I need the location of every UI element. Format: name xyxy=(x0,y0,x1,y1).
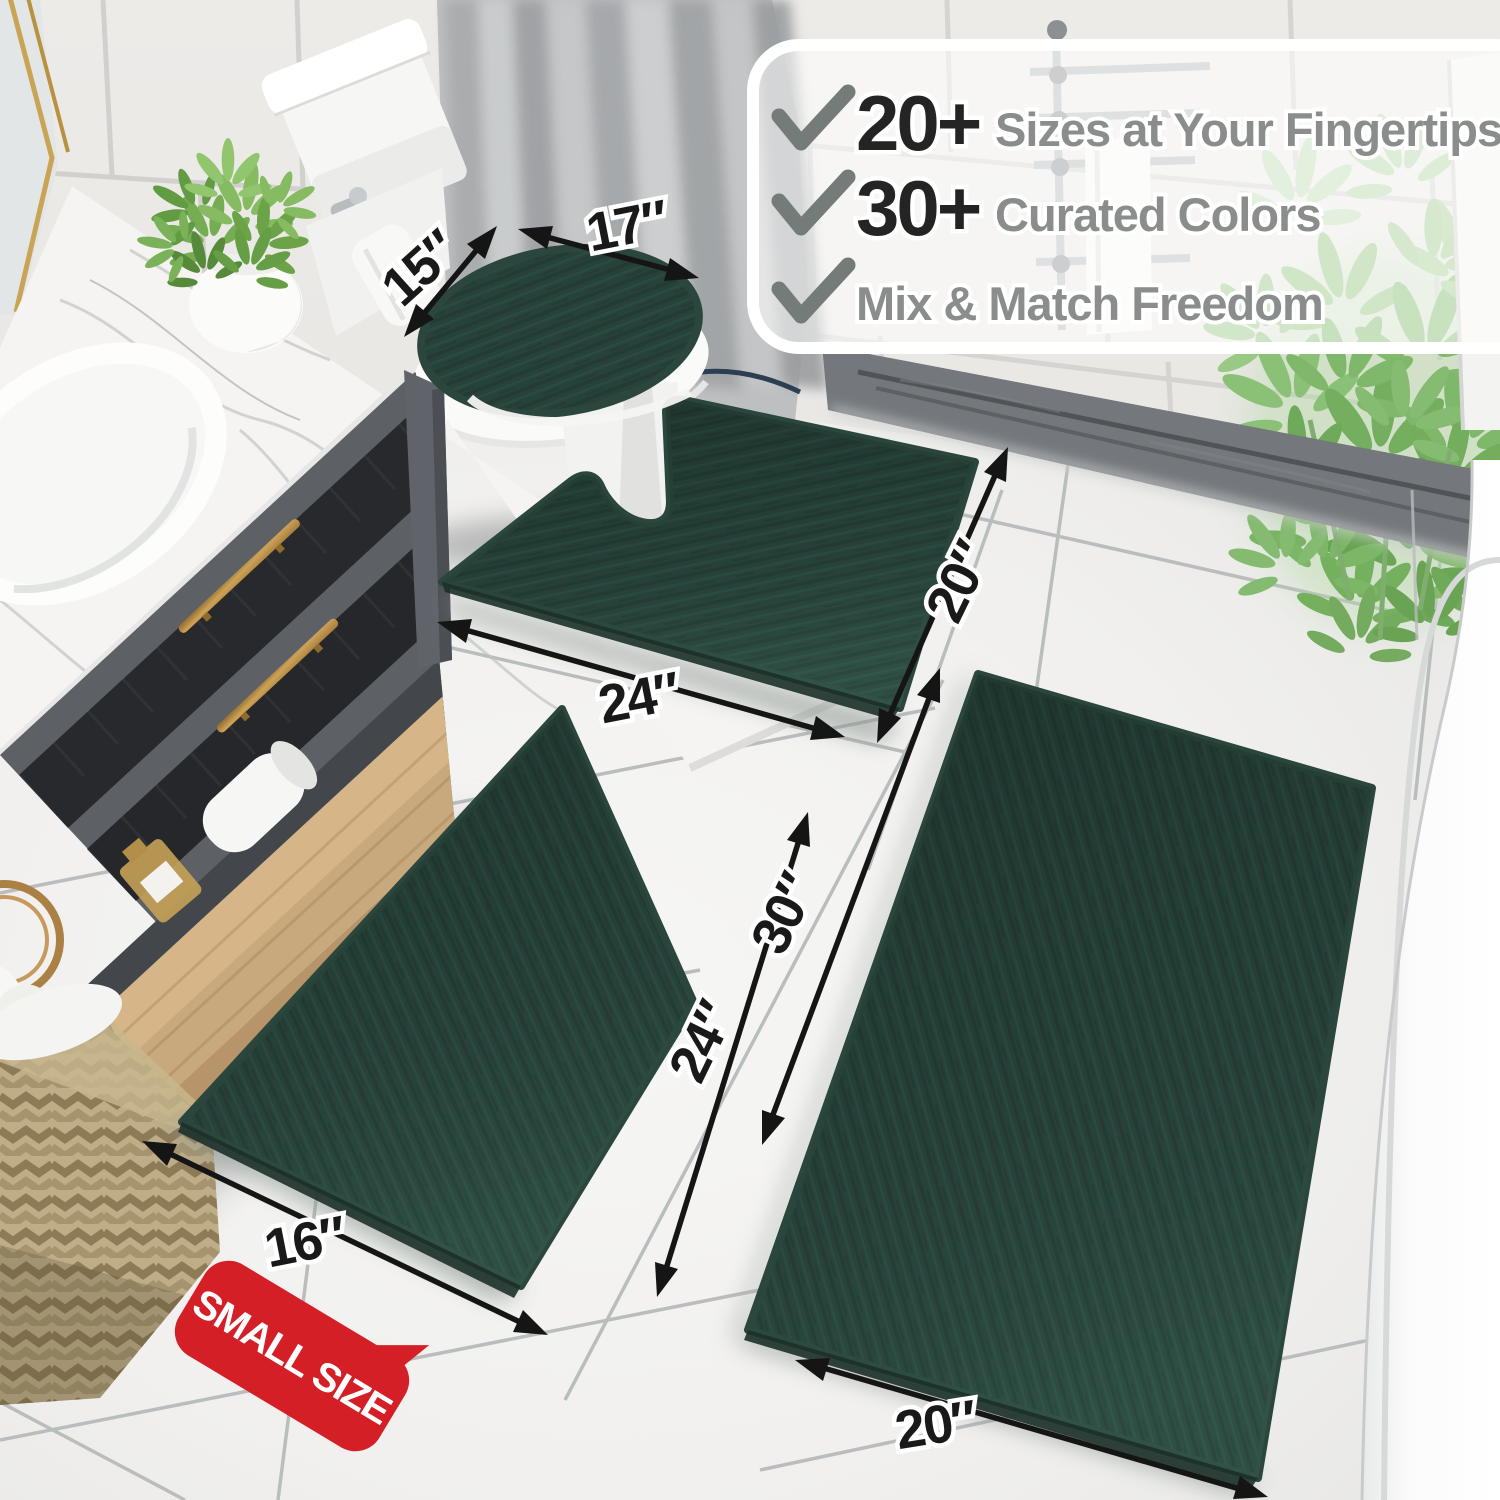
svg-text:Sizes at Your Fingertips: Sizes at Your Fingertips xyxy=(995,103,1500,156)
svg-text:30+: 30+ xyxy=(856,164,980,252)
svg-text:20+: 20+ xyxy=(856,79,980,167)
svg-text:Curated Colors: Curated Colors xyxy=(995,188,1321,241)
svg-text:20″: 20″ xyxy=(891,1389,980,1461)
svg-text:Mix & Match Freedom: Mix & Match Freedom xyxy=(856,277,1323,330)
